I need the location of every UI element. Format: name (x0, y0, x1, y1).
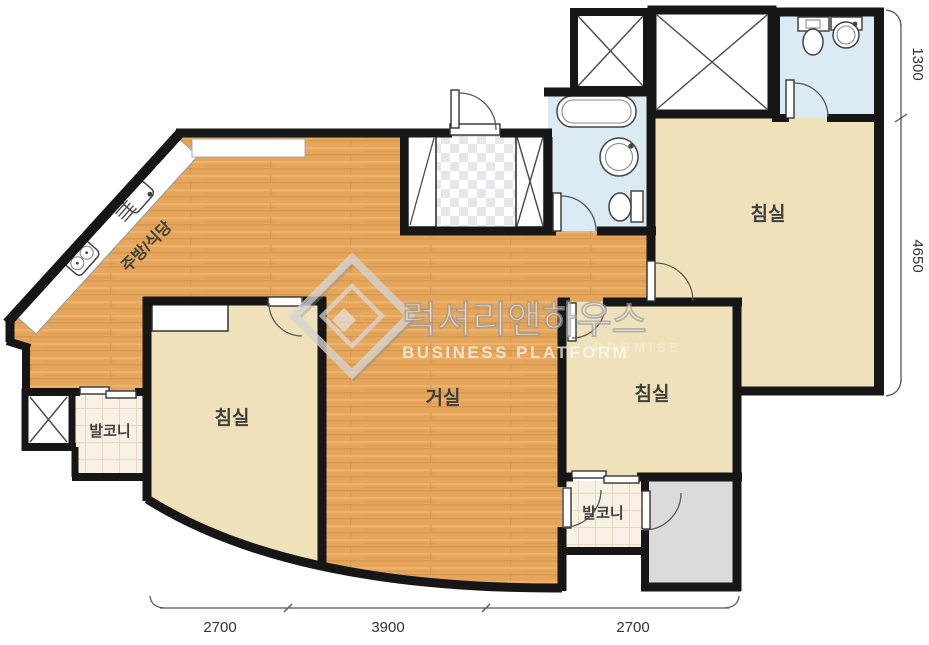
dimension-bottom-3900: 3900 (371, 619, 404, 636)
room-bedroom-right-label: 침실 (751, 203, 786, 225)
room-balcony-bottom-label: 발코니 (582, 505, 623, 522)
shoe-closet (408, 136, 436, 227)
floor-plan: 주방/식당 거실 침실 침실 침실 발코니 발코니 럭셔리앤하우스 BUSINE… (0, 0, 929, 645)
bathtub-icon (557, 96, 636, 127)
dimension-right-4650: 4650 (909, 239, 926, 272)
room-living-label: 거실 (426, 387, 461, 409)
room-bedroom-left-label: 침실 (215, 407, 250, 429)
entry-duct-shaft (516, 136, 544, 227)
dimension-right-1300: 1300 (909, 47, 926, 80)
watermark-korean: 럭셔리앤하우스 (402, 300, 647, 342)
floor-plan-page: 주방/식당 거실 침실 침실 침실 발코니 발코니 럭셔리앤하우스 BUSINE… (0, 0, 929, 645)
closet-left-bedroom (152, 304, 228, 331)
room-balcony-left-label: 발코니 (89, 423, 130, 440)
dimension-bottom-2700-left: 2700 (203, 619, 236, 636)
dimension-bottom-2700-right: 2700 (616, 619, 649, 636)
watermark-ghost: PROMISE (594, 340, 682, 355)
entry-foyer-floor (436, 136, 516, 227)
upper-cabinet (192, 139, 305, 157)
room-utility-floor (645, 481, 737, 587)
room-bedroom-middle-label: 침실 (635, 383, 670, 405)
toilet-icon (609, 191, 643, 222)
washbasin-icon (600, 138, 638, 176)
